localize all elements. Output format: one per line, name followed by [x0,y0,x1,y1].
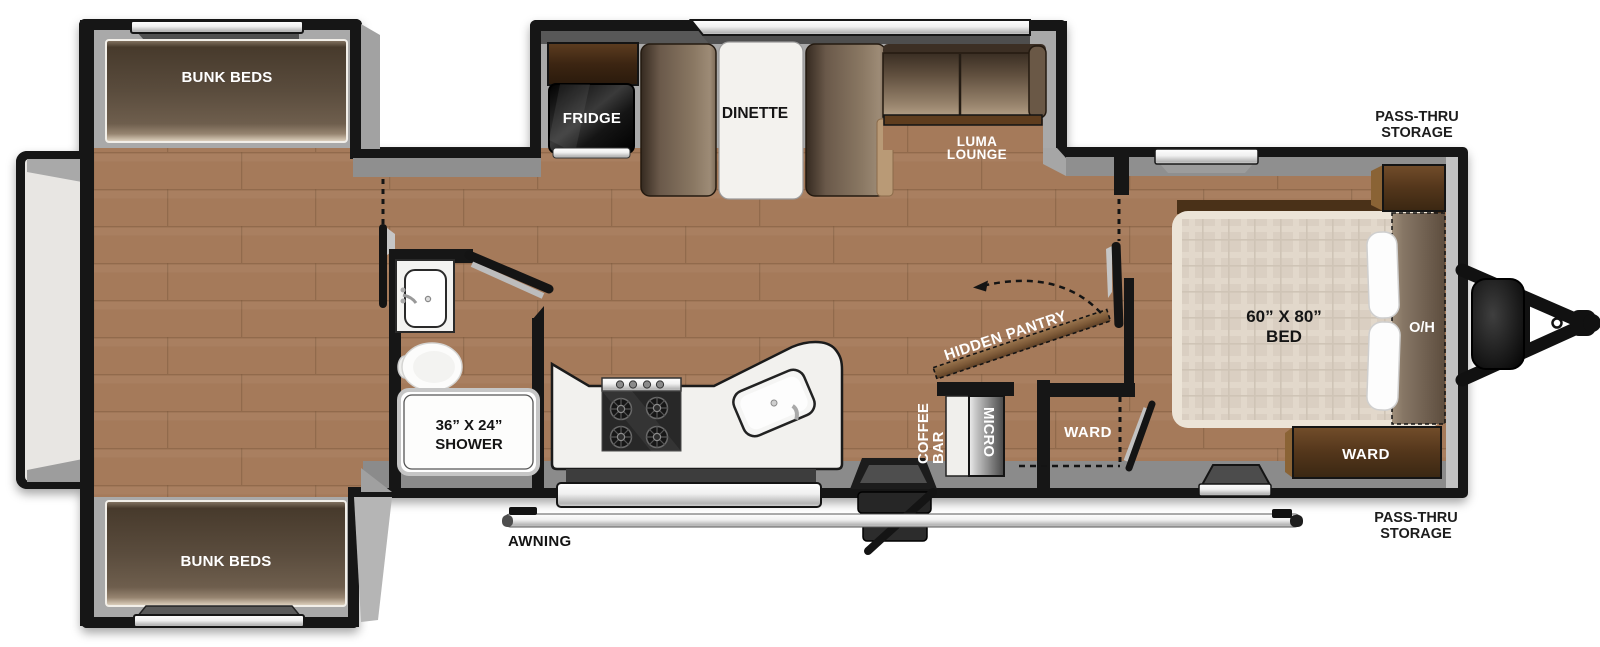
svg-text:FRIDGE: FRIDGE [563,110,621,127]
svg-text:STORAGE: STORAGE [1380,526,1452,542]
svg-text:60” X 80”: 60” X 80” [1246,307,1322,326]
svg-text:STORAGE: STORAGE [1381,125,1453,141]
svg-text:LOUNGE: LOUNGE [947,147,1007,162]
svg-text:SHOWER: SHOWER [435,436,503,453]
svg-text:DINETTE: DINETTE [722,105,788,122]
svg-text:36” X 24”: 36” X 24” [436,417,503,434]
svg-text:MICRO: MICRO [980,407,997,457]
svg-text:BUNK BEDS: BUNK BEDS [181,553,272,570]
svg-text:BUNK BEDS: BUNK BEDS [182,69,273,86]
svg-text:O/H: O/H [1409,320,1435,336]
svg-text:PASS-THRU: PASS-THRU [1375,109,1459,125]
svg-text:PASS-THRU: PASS-THRU [1374,510,1458,526]
svg-text:WARD: WARD [1342,446,1390,463]
svg-text:BED: BED [1266,327,1302,346]
svg-text:AWNING: AWNING [508,533,571,550]
svg-text:WARD: WARD [1064,424,1112,441]
